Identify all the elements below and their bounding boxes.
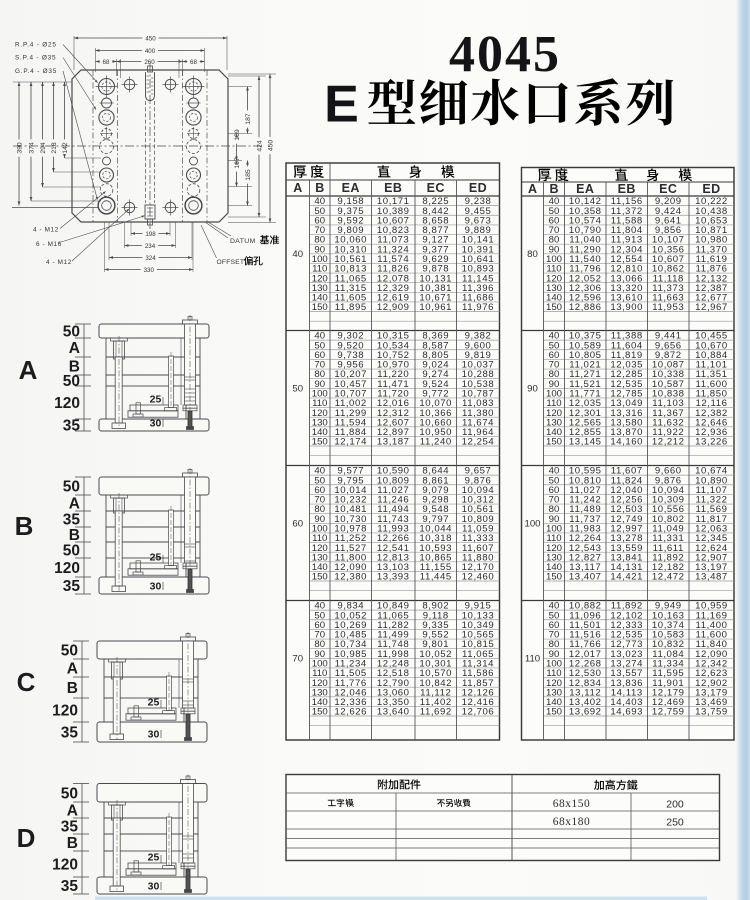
svg-text:218: 218 [51,142,58,154]
svg-text:11,692: 11,692 [420,707,452,718]
svg-text:142: 142 [62,142,69,154]
svg-text:150: 150 [546,707,562,718]
svg-text:150: 150 [312,437,328,448]
svg-text:35: 35 [63,512,81,529]
svg-text:13,393: 13,393 [377,572,410,583]
svg-text:12,759: 12,759 [652,707,685,718]
svg-text:68x180: 68x180 [553,816,591,828]
svg-text:C: C [17,667,36,697]
svg-text:150: 150 [312,572,328,583]
svg-text:50: 50 [63,373,80,390]
svg-text:30: 30 [148,729,160,741]
svg-text:DATUM: DATUM [230,238,256,245]
svg-text:B: B [67,680,78,697]
svg-text:13,187: 13,187 [377,437,410,448]
svg-text:50: 50 [61,785,78,802]
svg-text:68x150: 68x150 [553,798,591,810]
svg-text:11,240: 11,240 [420,437,452,448]
svg-text:50: 50 [292,384,303,395]
svg-text:OFFSET: OFFSET [217,259,245,266]
svg-text:50: 50 [63,543,80,560]
svg-text:294: 294 [40,142,47,154]
svg-text:A: A [528,182,537,196]
svg-text:11,895: 11,895 [335,302,367,313]
svg-text:450: 450 [145,35,156,42]
svg-text:12,472: 12,472 [652,572,685,583]
svg-text:S.P.4 - Ø35: S.P.4 - Ø35 [15,55,56,62]
svg-text:B: B [67,835,78,852]
svg-text:120: 120 [54,560,80,577]
svg-text:40: 40 [292,249,303,260]
svg-text:14,160: 14,160 [610,437,643,448]
svg-text:E: E [324,76,359,134]
svg-text:400: 400 [145,48,156,55]
svg-text:B: B [315,181,324,195]
svg-text:90: 90 [527,384,538,395]
svg-text:A: A [293,181,302,195]
svg-text:11,445: 11,445 [420,572,452,583]
svg-text:12,460: 12,460 [462,572,495,583]
svg-text:35: 35 [63,418,81,435]
svg-text:198: 198 [145,231,156,238]
svg-text:250: 250 [666,817,684,829]
svg-text:4045: 4045 [449,26,561,83]
svg-text:330: 330 [144,267,155,274]
svg-text:390: 390 [16,142,23,154]
svg-text:14,421: 14,421 [610,572,643,583]
svg-text:35: 35 [63,578,81,595]
svg-text:EA: EA [576,182,594,196]
svg-text:150: 150 [312,707,328,718]
svg-text:30: 30 [150,581,162,593]
svg-text:12,212: 12,212 [652,437,685,448]
svg-text:EA: EA [342,181,360,195]
svg-text:11,976: 11,976 [462,302,494,313]
svg-text:35: 35 [61,819,79,836]
svg-text:150: 150 [546,572,562,583]
svg-text:450: 450 [267,140,274,152]
svg-text:12,909: 12,909 [377,302,410,313]
svg-text:A: A [69,340,80,357]
svg-text:30: 30 [148,881,160,893]
svg-text:13,145: 13,145 [569,437,602,448]
svg-text:R.P.4 - Ø25: R.P.4 - Ø25 [15,42,57,49]
svg-text:A: A [19,355,38,385]
svg-text:424: 424 [256,140,263,152]
svg-text:A: A [69,496,80,513]
svg-text:25: 25 [148,852,160,864]
svg-text:60: 60 [292,519,303,530]
svg-text:185: 185 [245,169,252,181]
svg-text:12,174: 12,174 [334,437,367,448]
svg-text:13,226: 13,226 [695,437,728,448]
svg-text:G.P.4 - Ø35: G.P.4 - Ø35 [15,68,57,75]
svg-text:12,254: 12,254 [462,437,495,448]
svg-text:80: 80 [527,249,538,260]
svg-text:120: 120 [52,857,78,874]
svg-text:35: 35 [61,878,79,895]
svg-text:50: 50 [61,643,78,660]
svg-text:13,759: 13,759 [695,707,728,718]
svg-text:B: B [69,527,80,544]
svg-text:A: A [67,661,78,678]
svg-text:13,900: 13,900 [610,302,643,313]
svg-text:187: 187 [245,113,252,125]
svg-text:ED: ED [469,181,487,195]
svg-text:13,692: 13,692 [569,707,602,718]
svg-text:324: 324 [145,255,156,262]
svg-text:150: 150 [312,302,328,313]
svg-text:A: A [67,803,78,820]
svg-text:D: D [17,823,36,853]
svg-text:150: 150 [546,302,562,313]
svg-text:EB: EB [384,181,402,195]
svg-text:25: 25 [150,552,162,564]
svg-text:12,967: 12,967 [695,302,728,313]
svg-text:70: 70 [292,654,303,665]
svg-text:13,407: 13,407 [569,572,602,583]
svg-text:4 - M12: 4 - M12 [33,227,59,234]
svg-text:12,886: 12,886 [569,302,602,313]
svg-text:13,640: 13,640 [377,707,410,718]
svg-text:200: 200 [666,799,684,811]
svg-text:374: 374 [28,142,35,154]
svg-text:6 - M16: 6 - M16 [36,241,62,248]
svg-text:12,626: 12,626 [334,707,367,718]
svg-text:B: B [15,511,34,541]
svg-text:120: 120 [54,395,80,412]
svg-text:68: 68 [103,59,110,66]
svg-text:B: B [549,182,558,196]
svg-text:50: 50 [63,479,80,496]
svg-text:25: 25 [148,697,160,709]
svg-text:12,706: 12,706 [462,707,495,718]
svg-text:50: 50 [63,324,80,341]
svg-text:150: 150 [546,437,562,448]
svg-text:120: 120 [52,703,78,720]
svg-text:234: 234 [145,243,156,250]
svg-text:EC: EC [659,182,677,196]
svg-text:ED: ED [702,182,720,196]
svg-text:100: 100 [524,519,540,530]
svg-text:30: 30 [150,418,162,430]
svg-text:68: 68 [190,59,197,66]
svg-text:13,487: 13,487 [695,572,728,583]
svg-text:25: 25 [150,394,162,406]
svg-text:EB: EB [618,182,636,196]
svg-text:12,380: 12,380 [334,572,367,583]
svg-text:EC: EC [427,181,445,195]
svg-text:35: 35 [61,725,79,742]
svg-text:11,953: 11,953 [652,302,684,313]
svg-text:4 - M12: 4 - M12 [46,259,72,266]
svg-text:14,693: 14,693 [610,707,643,718]
svg-text:109: 109 [234,129,241,141]
svg-text:260: 260 [144,59,155,66]
svg-text:110: 110 [525,654,540,665]
svg-text:10,961: 10,961 [419,302,452,313]
